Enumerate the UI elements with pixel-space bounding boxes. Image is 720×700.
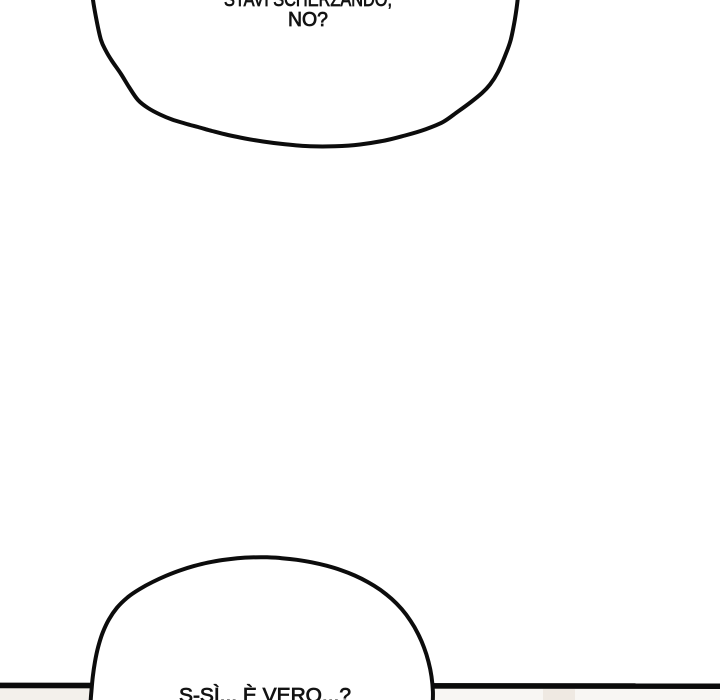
svg-text:S-SÌ... È VERO...?: S-SÌ... È VERO...? bbox=[179, 684, 351, 700]
svg-text:NO?: NO? bbox=[288, 9, 328, 31]
